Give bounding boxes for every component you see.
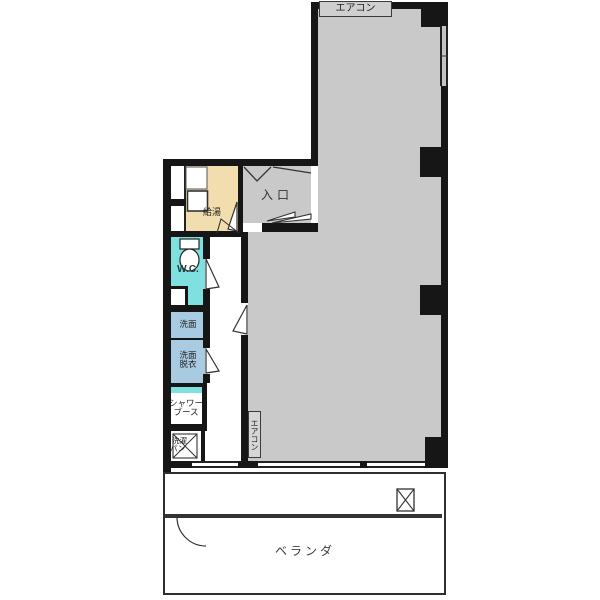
wall-right-1 xyxy=(441,86,448,147)
main-room-floor-upper xyxy=(318,9,441,461)
window-bottom-2 xyxy=(258,461,360,468)
wall-right-3 xyxy=(441,315,448,437)
floor-plan: エアコン エアコン 入口 給湯 W.C. 洗面 洗面 脱衣 シャワー ブース 洗… xyxy=(0,0,600,600)
aircon-top-labelbox: エアコン xyxy=(319,1,392,17)
shower-tray xyxy=(171,387,202,393)
wall-wc-bottom xyxy=(163,305,210,312)
wall-right-2 xyxy=(441,177,448,285)
window-right xyxy=(440,26,448,86)
dressing-label-line2: 脱衣 xyxy=(179,360,196,369)
wc-closet xyxy=(171,286,188,305)
veranda-divider xyxy=(165,514,442,518)
wall-dressing-right xyxy=(203,374,210,383)
wall-entrance-bottom xyxy=(262,223,318,232)
aircon-wall-label: エアコン xyxy=(249,419,260,451)
shower-label-line2: ブース xyxy=(173,408,198,417)
veranda-outline xyxy=(163,472,446,595)
laundry-label-line2: パン xyxy=(170,445,187,453)
wall-left-section-top xyxy=(163,159,318,166)
wall-laundry-right xyxy=(201,431,205,461)
wall-bottom-tick xyxy=(360,461,367,468)
dressing-door-leaf xyxy=(206,349,219,373)
wall-dressing-bottom xyxy=(163,383,207,387)
aircon-wall-labelbox: エアコン xyxy=(248,411,261,458)
wall-corner-bottom-right xyxy=(425,437,448,468)
wall-mainroom-left-b xyxy=(241,335,248,461)
wall-bottom-seg-2 xyxy=(238,461,258,468)
wall-wc-right-a xyxy=(203,237,210,259)
wall-corner-top-right xyxy=(421,2,448,27)
laundry-label: 洗濯 パン xyxy=(172,437,187,453)
wc-label: W.C. xyxy=(169,264,207,277)
pillar-right-1 xyxy=(420,147,448,177)
main-room-door-leaf xyxy=(233,305,247,334)
pillar-right-2 xyxy=(420,285,448,315)
kitchen-storage-divider xyxy=(171,199,186,206)
entrance-label: 入口 xyxy=(243,186,311,204)
dressing-label: 洗面 脱衣 xyxy=(171,348,205,372)
wall-wc-right-b xyxy=(203,289,210,305)
veranda-label: ベランダ xyxy=(235,543,375,559)
wc-door-leaf xyxy=(206,259,219,289)
shower-label: シャワー ブース xyxy=(167,396,205,420)
wall-shower-bottom xyxy=(163,424,207,431)
window-bottom-1 xyxy=(192,461,238,468)
aircon-top-label: エアコン xyxy=(320,1,391,14)
wall-mainroom-left-a xyxy=(241,232,248,303)
washbasin-label: 洗面 xyxy=(171,319,205,330)
window-bottom-3 xyxy=(367,461,425,468)
hot-water-label: 給湯 xyxy=(192,207,232,219)
wall-bottom-seg-1 xyxy=(163,461,192,468)
wall-washbasin-right xyxy=(203,312,210,348)
wall-upper-room-left xyxy=(311,2,318,166)
